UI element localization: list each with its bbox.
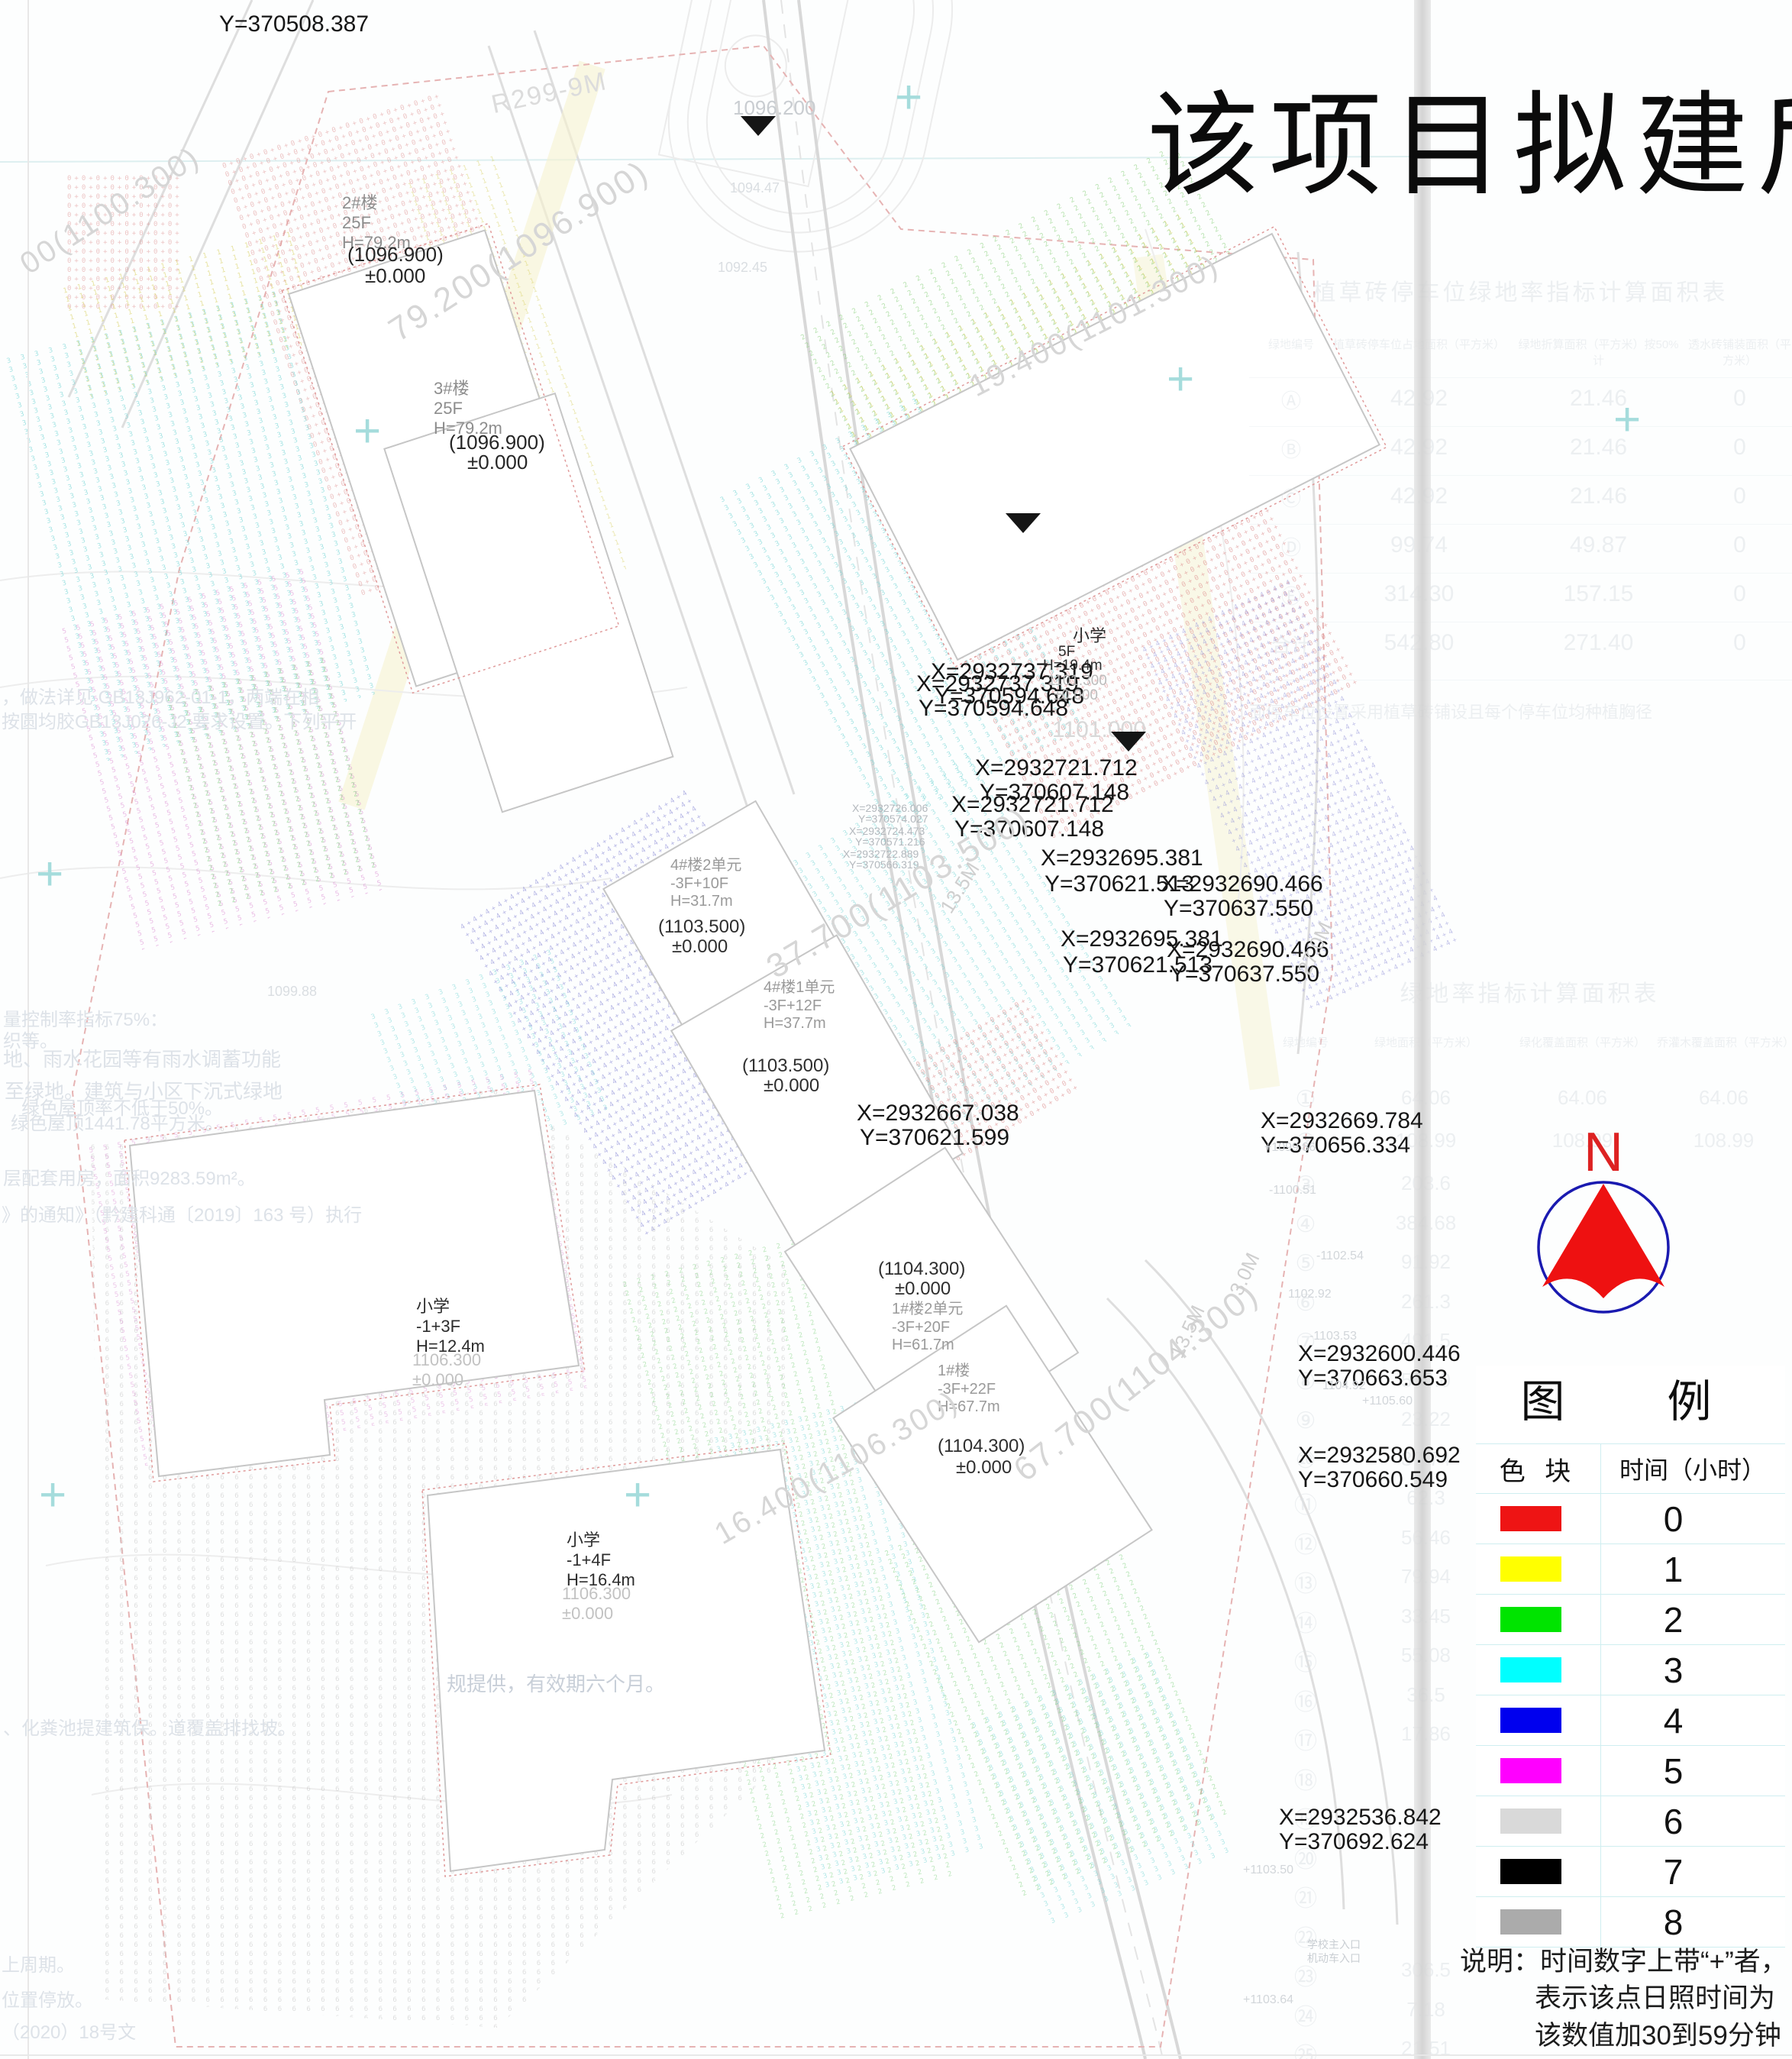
map-label: 3.0M <box>1225 1249 1264 1299</box>
map-label: 小学 <box>1073 626 1106 646</box>
legend-col-color: 色 块 <box>1476 1450 1600 1488</box>
north-label: N <box>1584 1122 1623 1183</box>
legend-color-swatch <box>1500 1909 1561 1935</box>
map-label: 1092.45 <box>718 260 767 276</box>
map-label: -1102.54 <box>1316 1249 1364 1264</box>
map-label: 机动车入口 <box>1307 1952 1361 1965</box>
legend-color-swatch <box>1500 1506 1561 1531</box>
site-plan-sheet: 0+0+0+0+0+0+0+0+0+0+0+0+0+0+0+0+0+0+0+0+… <box>0 0 1792 2059</box>
map-label: X=2932721.712 <box>975 755 1138 781</box>
map-label: 3#楼 25F H=79.2m <box>434 379 502 438</box>
legend-title: 图 例 <box>1476 1366 1785 1430</box>
map-label: ±0.000 <box>764 1075 819 1097</box>
map-label: （2020）18号文 <box>2 2022 136 2044</box>
map-label: R299-9M <box>489 66 610 120</box>
legend-panel: 图 例 色 块 时间（小时） 012345678 <box>1476 1366 1785 1947</box>
map-label: X=2932580.692 <box>1298 1442 1461 1469</box>
map-label: X=2932695.381 <box>1041 845 1203 871</box>
page-title: 该项目拟建后 <box>1147 53 1792 218</box>
map-label: -1100.51 <box>1269 1184 1316 1198</box>
note-line-3: 该数值加30到59分钟 <box>1460 2018 1788 2054</box>
map-label: +1103.64 <box>1243 1993 1293 2008</box>
map-label: 67.700(1104.300) <box>1006 1275 1267 1490</box>
legend-color-swatch <box>1500 1657 1561 1682</box>
legend-row: 3 <box>1476 1645 1785 1695</box>
map-label: ，做法详见 GB13J962-01-1，两端在相 <box>2 687 319 709</box>
map-label: Y=370508.387 <box>219 11 369 37</box>
map-label: 、化粪池提建筑保。道覆盖排找坡。 <box>3 1718 296 1740</box>
legend-note: 说明：时间数字上带“+”者， 表示该点日照时间为 该数值加30到59分钟 <box>1460 1944 1788 2054</box>
map-label: Y=370594.648 <box>919 695 1068 722</box>
map-label: X=2932667.038 <box>857 1100 1019 1126</box>
entrance-marker-icon <box>741 116 776 136</box>
legend-row: 6 <box>1476 1796 1785 1847</box>
legend-row: 2 <box>1476 1595 1785 1645</box>
map-label: (1103.500) <box>658 916 745 938</box>
map-label: ±0.000 <box>1054 687 1098 704</box>
map-label: 00(1100.300) <box>14 139 207 282</box>
legend-hours-value: 7 <box>1561 1851 1785 1893</box>
map-label: Y=370692.624 <box>1279 1828 1429 1855</box>
map-label: 4#楼1单元 -3F+12F H=37.7m <box>764 979 835 1033</box>
map-label: 1#楼2单元 -3F+20F H=61.7m <box>892 1301 963 1355</box>
map-label: 地、雨水花园等有雨水调蓄功能 <box>3 1048 281 1072</box>
north-arrow-icon: N <box>1519 1111 1703 1340</box>
map-label: ±0.000 <box>467 451 528 474</box>
map-label: 量控制率指标75%： <box>3 1010 168 1031</box>
legend-hours-value: 0 <box>1561 1498 1785 1540</box>
map-label: 1106.300 ±0.000 <box>562 1584 631 1624</box>
map-label: X=2932690.466 <box>1161 871 1323 897</box>
map-label: 小学 -1+3F H=12.4m <box>416 1297 485 1356</box>
legend-color-swatch <box>1500 1708 1561 1733</box>
map-label: ±0.000 <box>365 264 425 288</box>
map-label: 1094.47 <box>730 180 780 196</box>
map-label: 学校主入口 <box>1307 1938 1361 1951</box>
legend-color-swatch <box>1500 1556 1561 1582</box>
map-label: +1103.50 <box>1243 1863 1293 1878</box>
map-label: Y=370637.550 <box>1164 895 1313 922</box>
map-label: Y=370574.027 <box>858 813 928 826</box>
legend-col-time: 时间（小时） <box>1600 1451 1785 1486</box>
map-label: +1105.60 <box>1362 1395 1413 1409</box>
legend-row: 7 <box>1476 1847 1785 1897</box>
legend-row: 8 <box>1476 1897 1785 1947</box>
map-label: ±0.000 <box>672 936 728 958</box>
map-label: 16.400(1106.300) <box>709 1384 965 1553</box>
legend-hours-value: 6 <box>1561 1801 1785 1842</box>
map-label: Y=370660.549 <box>1298 1466 1448 1493</box>
entrance-marker-icon <box>1111 732 1146 752</box>
map-label: ±0.000 <box>895 1278 951 1300</box>
map-label: (1096.900) <box>347 243 444 267</box>
legend-color-swatch <box>1500 1859 1561 1884</box>
legend-color-swatch <box>1500 1758 1561 1783</box>
legend-row: 5 <box>1476 1746 1785 1796</box>
legend-hours-value: 2 <box>1561 1599 1785 1640</box>
note-line-2: 表示该点日照时间为 <box>1460 1980 1788 2017</box>
map-label: 规提供，有效期六个月。 <box>447 1673 665 1696</box>
map-label: X=2932536.842 <box>1279 1804 1442 1831</box>
legend-divider <box>1600 1444 1601 1947</box>
north-compass: N <box>1519 1111 1703 1344</box>
map-label: ±0.000 <box>956 1457 1012 1479</box>
map-label: 》的通知》（黔建科通〔2019〕163 号）执行 <box>2 1205 362 1227</box>
legend-color-swatch <box>1500 1607 1561 1632</box>
legend-hours-value: 8 <box>1561 1902 1785 1943</box>
legend-hours-value: 4 <box>1561 1700 1785 1741</box>
map-label: 小学 -1+4F H=16.4m <box>567 1531 635 1590</box>
map-label: Y=370571.216 <box>855 836 925 848</box>
legend-rows: 012345678 <box>1476 1494 1785 1947</box>
legend-row: 4 <box>1476 1695 1785 1746</box>
map-label: 绿色屋顶1441.78平方米。 <box>11 1114 224 1135</box>
map-label: 按圆均胶GB13J026-J2 要求设置。下列平开 <box>2 712 357 733</box>
legend-hours-value: 1 <box>1561 1549 1785 1590</box>
legend-row: 1 <box>1476 1544 1785 1595</box>
legend-header-row: 色 块 时间（小时） <box>1476 1444 1785 1494</box>
map-label: 位置停放。 <box>2 1990 93 2012</box>
map-label: 上周期。 <box>2 1955 75 1977</box>
map-label: X=2932669.784 <box>1261 1107 1423 1134</box>
map-label: X=2932600.446 <box>1298 1340 1461 1367</box>
legend-hours-value: 5 <box>1561 1750 1785 1792</box>
legend-table: 色 块 时间（小时） 012345678 <box>1476 1443 1785 1947</box>
entrance-marker-icon <box>1006 513 1041 533</box>
map-label: (1104.300) <box>878 1259 965 1280</box>
map-label: -1103.53 <box>1309 1330 1357 1344</box>
map-label: X=2932721.712 <box>951 791 1114 818</box>
legend-hours-value: 3 <box>1561 1650 1785 1691</box>
map-label: +1099.86 <box>1264 1141 1316 1156</box>
map-label: Y=370663.653 <box>1298 1365 1448 1392</box>
map-label: (1103.500) <box>742 1055 829 1077</box>
map-label: 1102.92 <box>1288 1288 1332 1302</box>
map-label: 1099.88 <box>267 984 317 1000</box>
legend-row: 0 <box>1476 1494 1785 1544</box>
map-label: Y=370621.599 <box>860 1124 1009 1151</box>
map-label: 4#楼2单元 -3F+10F H=31.7m <box>670 857 741 911</box>
map-label: 1106.300 ±0.000 <box>412 1350 481 1390</box>
legend-color-swatch <box>1500 1808 1561 1834</box>
map-label: 1104.92 <box>1322 1379 1366 1394</box>
note-line-1: 说明：时间数字上带“+”者， <box>1460 1944 1788 1980</box>
map-label: 层配套用房，面积9283.59m²。 <box>3 1168 256 1190</box>
